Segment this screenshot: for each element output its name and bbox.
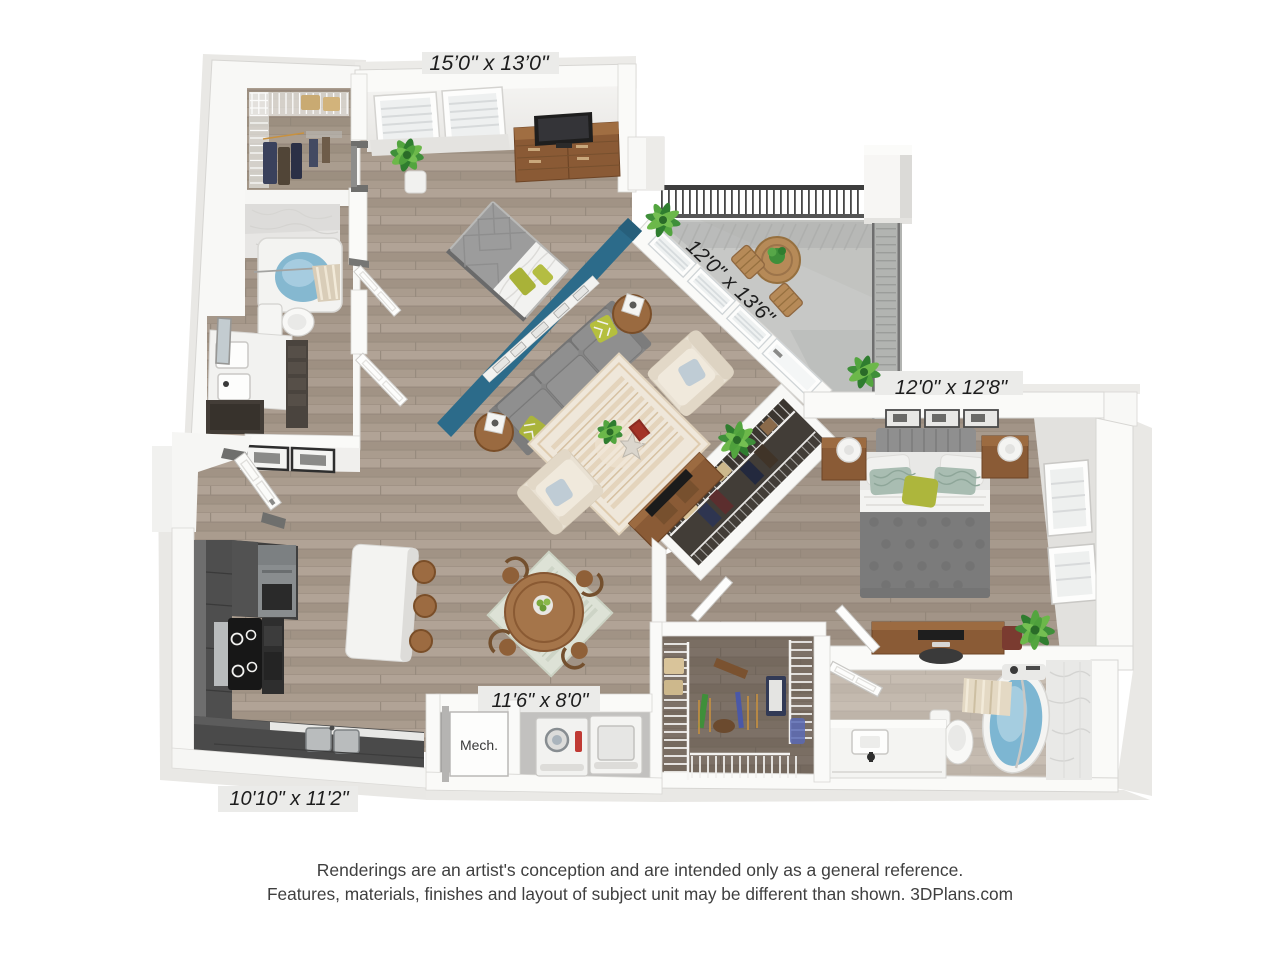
svg-text:12'0" x 12'8": 12'0" x 12'8" xyxy=(895,376,1009,399)
svg-text:15’0" x 13’0": 15’0" x 13’0" xyxy=(429,51,550,75)
svg-text:Features, materials, finishes: Features, materials, finishes and layout… xyxy=(267,884,1013,904)
svg-text:11'6" x 8'0": 11'6" x 8'0" xyxy=(491,690,589,712)
svg-text:10'10" x 11'2": 10'10" x 11'2" xyxy=(229,788,349,810)
svg-text:Renderings are an artist's con: Renderings are an artist's conception an… xyxy=(317,860,963,880)
svg-text:Mech.: Mech. xyxy=(460,737,498,753)
